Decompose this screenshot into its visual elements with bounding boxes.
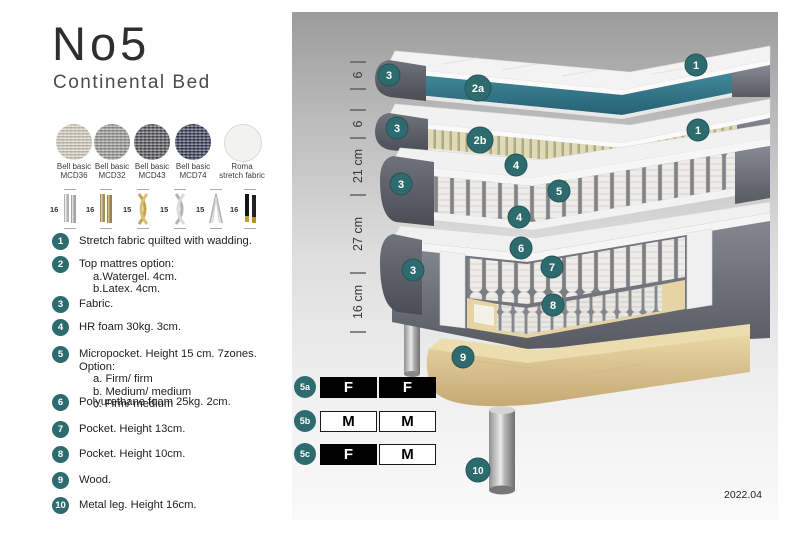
- firmness-cell: M: [379, 411, 436, 432]
- feature-main-line: Micropocket. Height 15 cm. 7zones. Optio…: [79, 348, 290, 373]
- svg-text:2b: 2b: [474, 135, 487, 147]
- badge-9-wood: 9: [452, 346, 474, 368]
- fabric-label: Roma stretch fabric: [214, 162, 270, 180]
- badge-1-quilted-top: 1: [685, 54, 707, 76]
- fabric-name: Bell basic: [135, 162, 169, 171]
- feature-sub-line: a.Watergel. 4cm.: [93, 271, 177, 284]
- feature-number-badge: 6: [52, 394, 69, 411]
- fabric-name: Roma: [231, 162, 252, 171]
- feature-main-line: Top mattres option:: [79, 258, 177, 271]
- dim-base-box: 27 cm: [351, 217, 365, 251]
- svg-text:1: 1: [695, 125, 701, 137]
- feature-number-badge: 3: [52, 296, 69, 313]
- leg-height: 15: [160, 205, 168, 214]
- fabric-name: Bell basic: [176, 162, 210, 171]
- feature-text: Pocket. Height 13cm.: [79, 421, 185, 436]
- firmness-row-5a: 5a F F: [294, 376, 438, 398]
- badge-2b-latex: 2b: [467, 127, 493, 153]
- feature-item-8: 8 Pocket. Height 10cm.: [52, 446, 290, 463]
- firmness-cell: F: [379, 377, 436, 398]
- svg-text:9: 9: [460, 352, 466, 364]
- feature-number-badge: 8: [52, 446, 69, 463]
- feature-text: Stretch fabric quilted with wadding.: [79, 233, 252, 248]
- base-box: [380, 202, 770, 349]
- feature-item-2: 2 Top mattres option: a.Watergel. 4cm. b…: [52, 256, 290, 296]
- info-panel: No5 Continental Bed Bell basic MCD36 Bel…: [0, 0, 292, 533]
- leg-height: 15: [123, 205, 131, 214]
- badge-2a-watergel: 2a: [465, 75, 491, 101]
- leg-option-chrome-cylinder: 16: [50, 186, 81, 232]
- dim-latex-layer: 6: [351, 120, 365, 127]
- gold-twisted-legs-icon: [132, 188, 154, 230]
- feature-text: Metal leg. Height 16cm.: [79, 497, 197, 512]
- feature-number-badge: 10: [52, 497, 69, 514]
- leg-option-chrome-twisted: 15: [160, 186, 191, 232]
- badge-3-fabric-mattress: 3: [390, 173, 412, 195]
- firmness-cell: F: [320, 377, 377, 398]
- badge-1-quilted-second: 1: [687, 119, 709, 141]
- badge-4-hr-foam-top: 4: [505, 154, 527, 176]
- leg-option-gold-twisted: 15: [123, 186, 154, 232]
- leg-height: 16: [86, 205, 94, 214]
- dim-mattress: 21 cm: [351, 149, 365, 183]
- hairpin-legs-icon: [205, 188, 227, 230]
- firmness-cell: M: [320, 411, 377, 432]
- badge-3-fabric-second: 3: [386, 117, 408, 139]
- fabric-code: stretch fabric: [219, 171, 265, 180]
- leg-option-hairpin: 15: [196, 186, 227, 232]
- feature-text: Fabric.: [79, 296, 113, 311]
- badge-7-pocket-13: 7: [541, 256, 563, 278]
- svg-text:3: 3: [394, 123, 400, 135]
- fabric-swatch-mcd74: [175, 124, 211, 160]
- dim-topper: 6: [351, 71, 365, 78]
- svg-text:3: 3: [386, 70, 392, 82]
- feature-number-badge: 7: [52, 421, 69, 438]
- badge-3-fabric-top: 3: [378, 64, 400, 86]
- version-stamp: 2022.04: [682, 489, 762, 501]
- badge-5-micropocket: 5: [548, 180, 570, 202]
- svg-text:5: 5: [556, 186, 562, 198]
- feature-item-9: 9 Wood.: [52, 472, 290, 489]
- black-gold-tip-legs-icon: [239, 188, 261, 230]
- feature-item-3: 3 Fabric.: [52, 296, 290, 313]
- bed-cutaway-diagram: 6 6 21 cm 27 cm 16 cm: [292, 12, 778, 520]
- firmness-cell: F: [320, 444, 377, 465]
- svg-text:2a: 2a: [472, 83, 485, 95]
- badge-10-metal-leg: 10: [466, 458, 490, 482]
- badge-3-fabric-base: 3: [402, 259, 424, 281]
- feature-number-badge: 4: [52, 319, 69, 336]
- firmness-badge-5a: 5a: [294, 376, 316, 398]
- svg-text:1: 1: [693, 60, 699, 72]
- svg-text:4: 4: [513, 160, 520, 172]
- firmness-badge-5b: 5b: [294, 410, 316, 432]
- page-subtitle: Continental Bed: [53, 72, 211, 94]
- infographic-page: No5 Continental Bed Bell basic MCD36 Bel…: [0, 0, 800, 533]
- firmness-row-5c: 5c F M: [294, 443, 438, 465]
- brass-cylinder-legs-icon: [95, 188, 117, 230]
- badge-8-pocket-10: 8: [542, 294, 564, 316]
- feature-number-badge: 2: [52, 256, 69, 273]
- fabric-code: MCD74: [179, 171, 206, 180]
- feature-number-badge: 1: [52, 233, 69, 250]
- badge-6-polyurethane: 6: [510, 237, 532, 259]
- svg-text:4: 4: [516, 212, 523, 224]
- leg-height: 16: [230, 205, 238, 214]
- feature-number-badge: 9: [52, 472, 69, 489]
- chrome-cylinder-legs-icon: [59, 188, 81, 230]
- feature-item-10: 10 Metal leg. Height 16cm.: [52, 497, 290, 514]
- feature-item-7: 7 Pocket. Height 13cm.: [52, 421, 290, 438]
- leg-option-brass-cylinder: 16: [86, 186, 117, 232]
- firmness-row-5b: 5b M M: [294, 410, 438, 432]
- feature-sub-line: b.Latex. 4cm.: [93, 283, 177, 296]
- fabric-swatch-mcd43: [134, 124, 170, 160]
- fabric-swatch-roma: [224, 124, 262, 162]
- feature-text: Wood.: [79, 472, 111, 487]
- feature-sub-line: a. Firm/ firm: [93, 373, 290, 386]
- fabric-swatch-mcd36: [56, 124, 92, 160]
- svg-text:6: 6: [518, 243, 524, 255]
- svg-text:3: 3: [410, 265, 416, 277]
- fabric-label: Bell basic MCD74: [165, 162, 221, 180]
- feature-text: Pocket. Height 10cm.: [79, 446, 185, 461]
- svg-text:3: 3: [398, 179, 404, 191]
- feature-text: Top mattres option: a.Watergel. 4cm. b.L…: [79, 256, 177, 296]
- svg-text:7: 7: [549, 262, 555, 274]
- feature-number-badge: 5: [52, 346, 69, 363]
- feature-text: HR foam 30kg. 3cm.: [79, 319, 181, 334]
- feature-item-4: 4 HR foam 30kg. 3cm.: [52, 319, 290, 336]
- chrome-twisted-legs-icon: [169, 188, 191, 230]
- feature-item-6: 6 Polyurethane foam 25kg. 2cm.: [52, 394, 290, 411]
- page-title: No5: [52, 16, 150, 71]
- firmness-cell: M: [379, 444, 436, 465]
- dim-legs: 16 cm: [351, 285, 365, 319]
- fabric-code: MCD43: [138, 171, 165, 180]
- fabric-code: MCD32: [98, 171, 125, 180]
- feature-text: Polyurethane foam 25kg. 2cm.: [79, 394, 231, 409]
- leg-height: 15: [196, 205, 204, 214]
- feature-item-1: 1 Stretch fabric quilted with wadding.: [52, 233, 290, 250]
- leg-option-black-gold-tip: 16: [230, 186, 261, 232]
- svg-text:8: 8: [550, 300, 556, 312]
- firmness-badge-5c: 5c: [294, 443, 316, 465]
- svg-text:10: 10: [472, 466, 484, 477]
- front-metal-leg: [489, 406, 515, 495]
- leg-height: 16: [50, 205, 58, 214]
- badge-4-hr-foam-bottom: 4: [508, 206, 530, 228]
- fabric-swatch-mcd32: [94, 124, 130, 160]
